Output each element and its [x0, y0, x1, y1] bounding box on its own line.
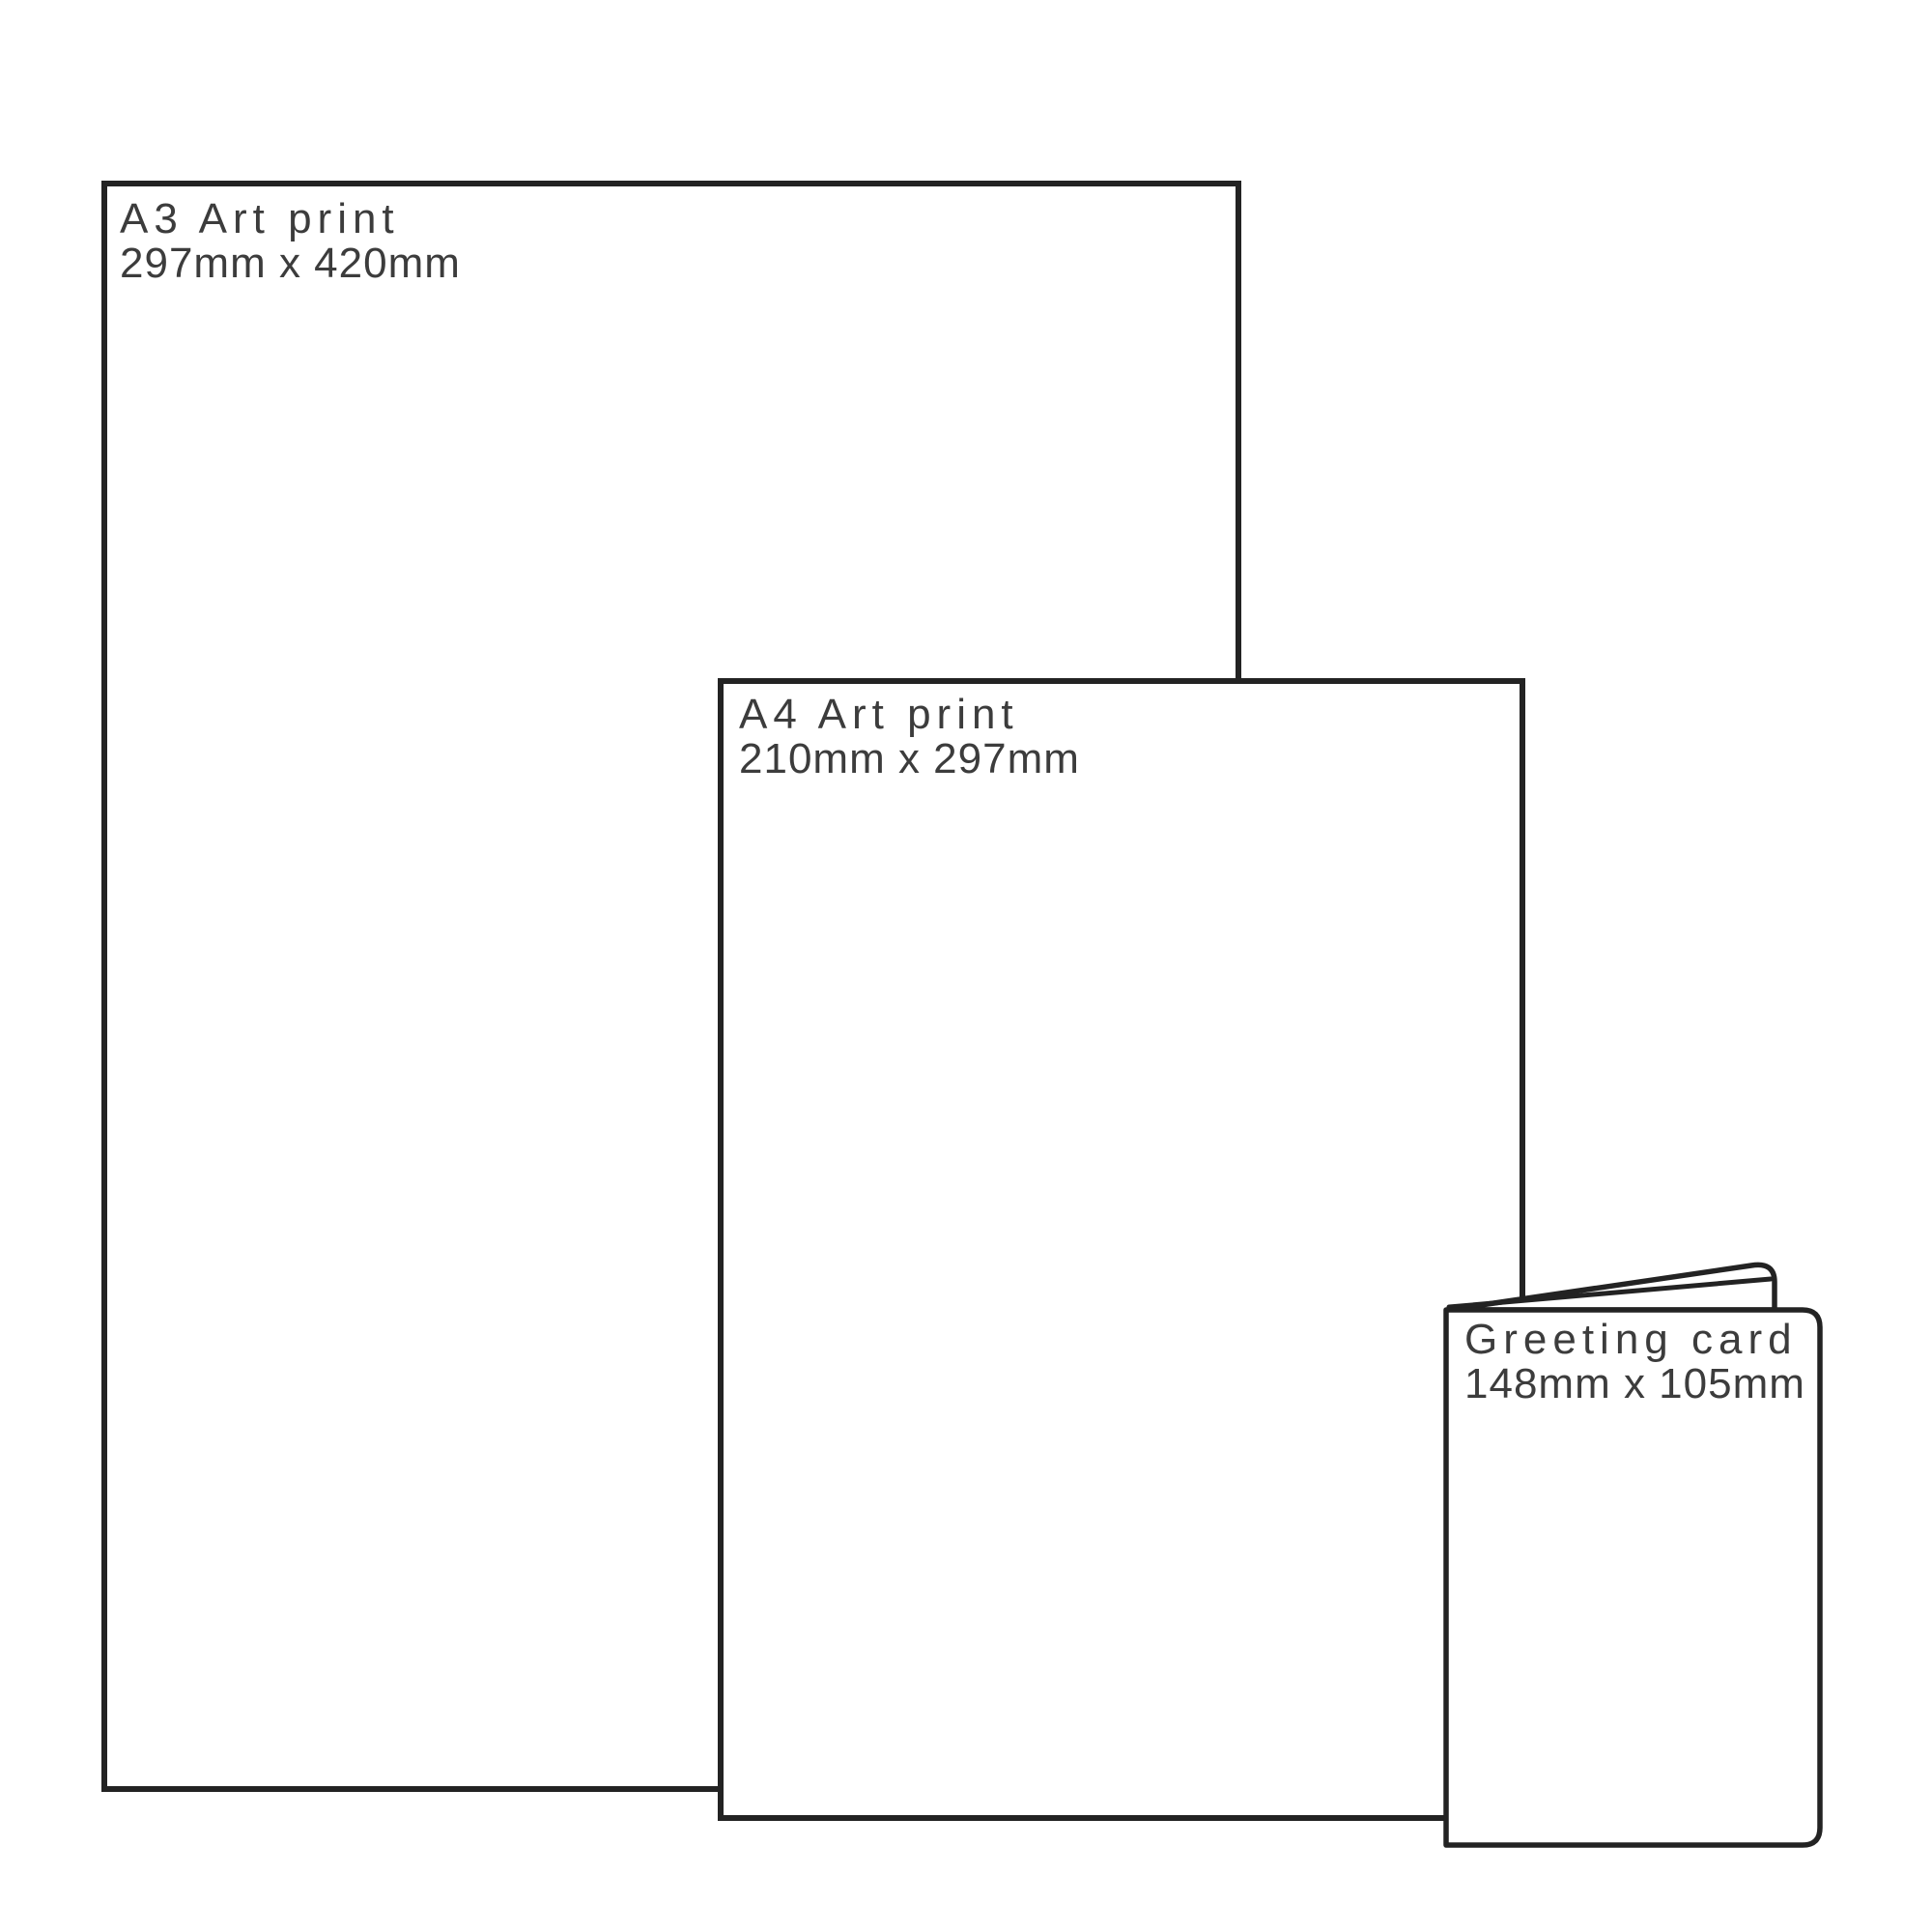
greeting-card-dimensions: 148mm x 105mm	[1464, 1362, 1805, 1406]
a4-title: A4 Art print	[739, 693, 1080, 737]
a4-sheet-outline	[721, 681, 1522, 1818]
size-comparison-diagram: A3 Art print 297mm x 420mm A4 Art print …	[0, 0, 1932, 1932]
greeting-card-label: Greeting card 148mm x 105mm	[1464, 1318, 1805, 1406]
a4-label: A4 Art print 210mm x 297mm	[739, 693, 1080, 781]
a4-dimensions: 210mm x 297mm	[739, 737, 1080, 781]
greeting-card-title: Greeting card	[1464, 1318, 1805, 1362]
a3-dimensions: 297mm x 420mm	[120, 241, 461, 286]
diagram-shapes	[0, 0, 1932, 1932]
a3-label: A3 Art print 297mm x 420mm	[120, 197, 461, 286]
a3-title: A3 Art print	[120, 197, 461, 241]
